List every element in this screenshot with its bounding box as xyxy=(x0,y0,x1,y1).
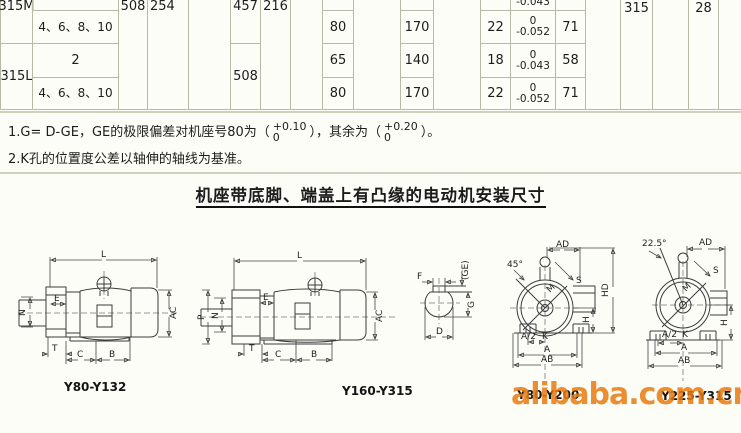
cell-B-315M: 457 xyxy=(230,0,261,44)
dim-label-L: L xyxy=(101,250,106,260)
diagram-front-view-y225-y315: 22.5° AD S M H A/2 K A AB xyxy=(620,231,741,391)
section-heading: 机座带底脚、端盖上有凸缘的电动机安装尺寸 xyxy=(0,182,741,206)
note-1-text: ）。 xyxy=(421,125,441,140)
cell-frame-315M: 315M xyxy=(0,0,33,44)
cell-D-c: 65 xyxy=(322,43,354,78)
dim-label-E: E xyxy=(263,293,269,303)
frame-size-315M: 315M xyxy=(0,0,35,13)
dim-label-AB: AB xyxy=(541,355,553,365)
dim-label-AD: AD xyxy=(699,238,712,248)
cell-K: 28 xyxy=(688,0,719,110)
cell-G-d: 71 xyxy=(555,77,586,110)
cell-blank-3 xyxy=(353,0,401,110)
dim-label-A2: A/2 xyxy=(662,330,677,340)
dim-label-T: T xyxy=(248,344,255,354)
caption-y80-y132: Y80-Y132 xyxy=(64,380,126,394)
motor-body xyxy=(274,289,340,342)
dim-label-G: G xyxy=(467,301,477,308)
cell-blank-1 xyxy=(188,0,231,110)
cell-blank-6 xyxy=(652,0,689,110)
tolerance-lower: -0.052 xyxy=(516,94,550,105)
cell-tol-d: 0-0.052 xyxy=(510,77,556,110)
cell-F-d: 22 xyxy=(480,77,511,110)
cell-F-b: 22 xyxy=(480,10,511,44)
cell-tol-b: 0-0.052 xyxy=(510,10,556,44)
cell-blank-5 xyxy=(585,0,621,110)
poles-value: 2 xyxy=(71,54,79,67)
cell-A: 508 xyxy=(118,0,148,110)
dim-label-C: C xyxy=(275,350,281,360)
dim-C: 216 xyxy=(263,0,288,13)
fan-cowl xyxy=(131,288,158,337)
dim-label-H: H xyxy=(582,316,592,323)
dim-E: 170 xyxy=(405,87,430,100)
dim-H: 315 xyxy=(624,2,649,15)
fraction-lower: 0 xyxy=(273,132,280,143)
dim-D: 65 xyxy=(330,54,347,67)
cell-A-half: 254 xyxy=(147,0,189,110)
dim-G: 71 xyxy=(562,87,579,100)
dim-F: 18 xyxy=(487,54,504,67)
alibaba-watermark: alibaba.com.cn xyxy=(511,377,741,412)
angle-line-45 xyxy=(516,279,545,308)
dim-label-AB: AB xyxy=(678,356,690,366)
cell-B-315L: 508 xyxy=(230,43,261,110)
cell-E-d: 170 xyxy=(400,77,434,110)
cell-frame-315L: 315L xyxy=(0,43,33,110)
separator-line xyxy=(0,172,741,174)
tolerance-upper: 0 xyxy=(530,50,537,61)
dim-F: 22 xyxy=(487,21,504,34)
cell-F-c: 18 xyxy=(480,43,511,78)
note-1-text: ），其余为（ xyxy=(310,125,382,140)
cell-poles-d: 4、6、8、10 xyxy=(32,77,119,110)
diagram-side-view-y160-y315: L E P N AC T C B xyxy=(200,232,400,397)
frame-size-315L: 315L xyxy=(0,70,32,83)
dim-label-H: H xyxy=(720,319,730,326)
poles-value: 4、6、8、10 xyxy=(38,21,112,34)
catalog-page: 315M 315L 4、6、8、10 2 4、6、8、10 508 254 45… xyxy=(0,0,741,433)
fan-cowl xyxy=(340,290,366,340)
dim-label-P: P xyxy=(197,314,207,320)
dim-label-N: N xyxy=(211,312,221,319)
cell-G-c: 58 xyxy=(555,43,586,78)
dim-E: 170 xyxy=(405,21,430,34)
note-2: 2.K孔的位置度公差以轴伸的轴线为基准。 xyxy=(8,152,250,167)
fraction-lower: 0 xyxy=(384,132,391,143)
tolerance-lower: -0.052 xyxy=(516,27,550,38)
tolerance-fraction-1: +0.100 xyxy=(270,121,310,143)
dim-label-A: A xyxy=(544,345,551,355)
cell-blank-2 xyxy=(290,0,323,110)
dim-D: 80 xyxy=(330,87,347,100)
dim-D: 80 xyxy=(330,21,347,34)
dim-label-22-5deg: 22.5° xyxy=(642,239,667,249)
dim-label-A2: A/2 xyxy=(521,332,536,342)
dim-G: 71 xyxy=(562,21,579,34)
dim-label-F: F xyxy=(417,272,422,282)
cell-blank-4 xyxy=(433,0,481,110)
terminal-box xyxy=(295,303,310,329)
tolerance-upper: 0 xyxy=(530,83,537,94)
dim-label-L: L xyxy=(297,251,302,261)
cell-edge-cut xyxy=(718,0,741,110)
angle-line-22-5 xyxy=(660,248,683,305)
separator-line xyxy=(0,111,741,113)
dim-label-B: B xyxy=(109,350,115,360)
motor-body xyxy=(80,288,131,340)
cell-E-c: 140 xyxy=(400,43,434,78)
cell-D-b: 80 xyxy=(322,10,354,44)
dim-label-AD: AD xyxy=(556,240,569,250)
diagram-front-view-y80-y200: 45° AD S M HD H A/2 K A AB xyxy=(494,231,626,396)
dim-B: 457 xyxy=(233,0,258,13)
dim-label-A: A xyxy=(681,343,688,353)
dim-label-S: S xyxy=(576,276,582,286)
dim-B: 508 xyxy=(233,70,258,83)
cell-poles-c: 2 xyxy=(32,43,119,78)
dim-K: 28 xyxy=(695,2,712,15)
tolerance-fragment: -0.043 xyxy=(516,0,550,8)
tolerance-lower: -0.043 xyxy=(516,61,550,72)
cell-H: 315 xyxy=(620,0,653,110)
dim-label-N: N xyxy=(18,309,28,316)
note-1-text: 1.G= D-GE，GE的极限偏差对机座号80为（ xyxy=(8,125,270,140)
dim-label-GE: (GE) xyxy=(461,260,471,280)
dim-label-C: C xyxy=(77,350,83,360)
section-heading-text: 机座带底脚、端盖上有凸缘的电动机安装尺寸 xyxy=(196,186,546,208)
terminal-box xyxy=(710,291,727,315)
dim-F: 22 xyxy=(487,87,504,100)
cell-G-b: 71 xyxy=(555,10,586,44)
poles-value: 4、6、8、10 xyxy=(38,87,112,100)
dim-label-AC: AC xyxy=(169,307,179,319)
cell-C: 216 xyxy=(260,0,291,110)
dim-label-HD: HD xyxy=(601,283,611,297)
dim-label-B: B xyxy=(311,350,317,360)
dim-G: 58 xyxy=(562,54,579,67)
cell-D-d: 80 xyxy=(322,77,354,110)
shaft-cross-section xyxy=(425,292,453,317)
dim-label-T: T xyxy=(51,344,58,354)
dim-label-S: S xyxy=(713,266,719,276)
note-2-text: 2.K孔的位置度公差以轴伸的轴线为基准。 xyxy=(8,152,250,167)
cell-tol-c: 0-0.043 xyxy=(510,43,556,78)
dim-label-E: E xyxy=(54,294,60,304)
dim-label-D: D xyxy=(436,327,443,337)
dim-A2: 254 xyxy=(150,0,175,13)
cell-E-b: 170 xyxy=(400,10,434,44)
dim-label-AC: AC xyxy=(375,310,385,322)
dim-E: 140 xyxy=(405,54,430,67)
dim-label-45deg: 45° xyxy=(507,260,523,270)
caption-y160-y315: Y160-Y315 xyxy=(342,384,413,398)
dim-A: 508 xyxy=(121,0,146,13)
diagram-side-view-y80-y132: L E N AC T C B xyxy=(18,233,188,383)
note-1: 1.G= D-GE，GE的极限偏差对机座号80为（+0.100），其余为（+0.… xyxy=(8,119,440,145)
tolerance-fraction-2: +0.200 xyxy=(381,121,421,143)
cell-poles-b: 4、6、8、10 xyxy=(32,10,119,44)
